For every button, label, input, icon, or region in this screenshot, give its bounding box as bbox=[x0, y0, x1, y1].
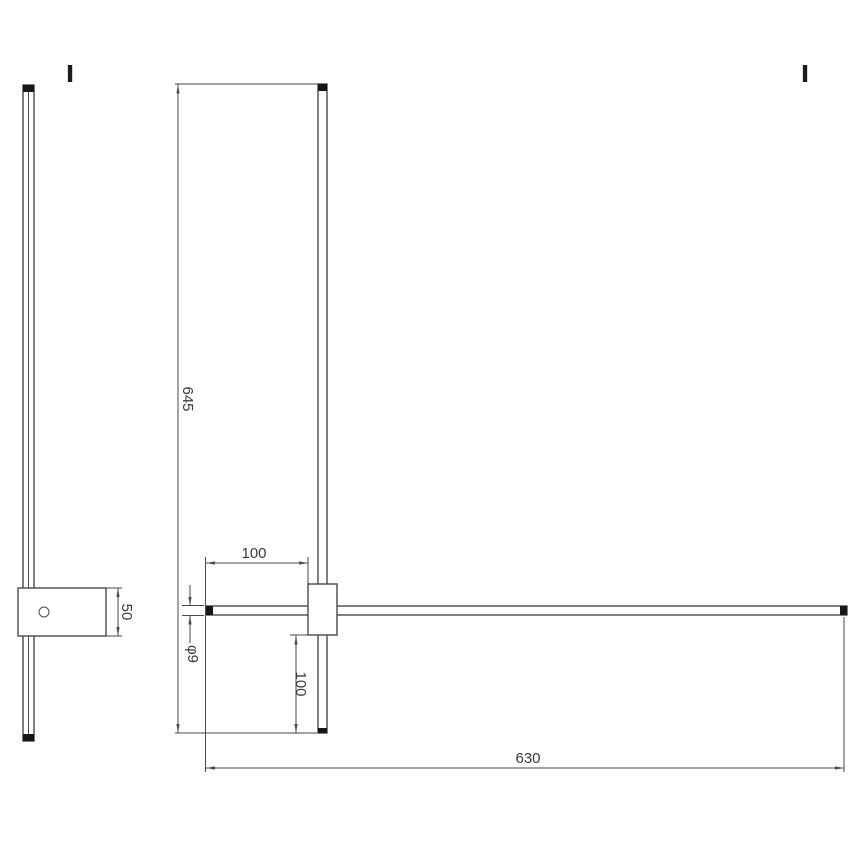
side-bar-top-endcap bbox=[23, 85, 34, 92]
arrowhead-up bbox=[294, 636, 297, 645]
vertical-bar-top-endcap bbox=[318, 84, 327, 91]
arrowhead-up bbox=[176, 85, 179, 94]
arrowhead-down bbox=[294, 724, 297, 733]
dim-arm-length-label: 630 bbox=[515, 750, 540, 767]
arrowhead-down bbox=[188, 597, 191, 606]
vertical-bar-bottom-endcap bbox=[318, 728, 327, 733]
side-mount-box bbox=[18, 588, 106, 636]
dimension-arm-offset-left: 100 bbox=[206, 545, 308, 584]
dimension-arm-length: 630 bbox=[206, 750, 844, 770]
dimension-box-height: 50 bbox=[106, 588, 135, 636]
side-view: 50 bbox=[18, 85, 135, 741]
dim-bar-length-label: 645 bbox=[179, 386, 196, 411]
dim-bar-diameter-label: φ9 bbox=[184, 645, 201, 663]
arrowhead-down bbox=[176, 724, 179, 733]
dimension-bar-length: 645 bbox=[175, 84, 318, 733]
arrowhead-up bbox=[188, 616, 191, 625]
horizontal-arm-right-endcap bbox=[840, 606, 847, 615]
side-bar-bottom-endcap bbox=[23, 734, 34, 741]
front-junction-box bbox=[308, 584, 337, 635]
arrowhead-up bbox=[116, 588, 119, 597]
section-marker-left: I bbox=[66, 62, 75, 88]
section-marker-right: I bbox=[801, 62, 810, 88]
front-view: 645 100 φ9 100 bbox=[175, 84, 847, 772]
arrowhead-right bbox=[299, 561, 308, 564]
dim-arm-offset-left-label: 100 bbox=[241, 545, 266, 562]
arrowhead-left bbox=[206, 561, 215, 564]
dim-box-height-label: 50 bbox=[118, 604, 135, 621]
arrowhead-down bbox=[116, 627, 119, 636]
horizontal-arm-left-endcap bbox=[206, 606, 213, 615]
dimension-drop-below-box: 100 bbox=[290, 635, 309, 733]
front-horizontal-arm bbox=[206, 606, 847, 615]
arrowhead-right bbox=[835, 766, 844, 769]
technical-drawing: I I 50 bbox=[0, 0, 868, 868]
arrowhead-left bbox=[206, 766, 215, 769]
dim-drop-below-box-label: 100 bbox=[292, 671, 309, 696]
drawing-canvas: I I 50 bbox=[0, 0, 868, 868]
dimension-bar-diameter: φ9 bbox=[182, 585, 204, 663]
